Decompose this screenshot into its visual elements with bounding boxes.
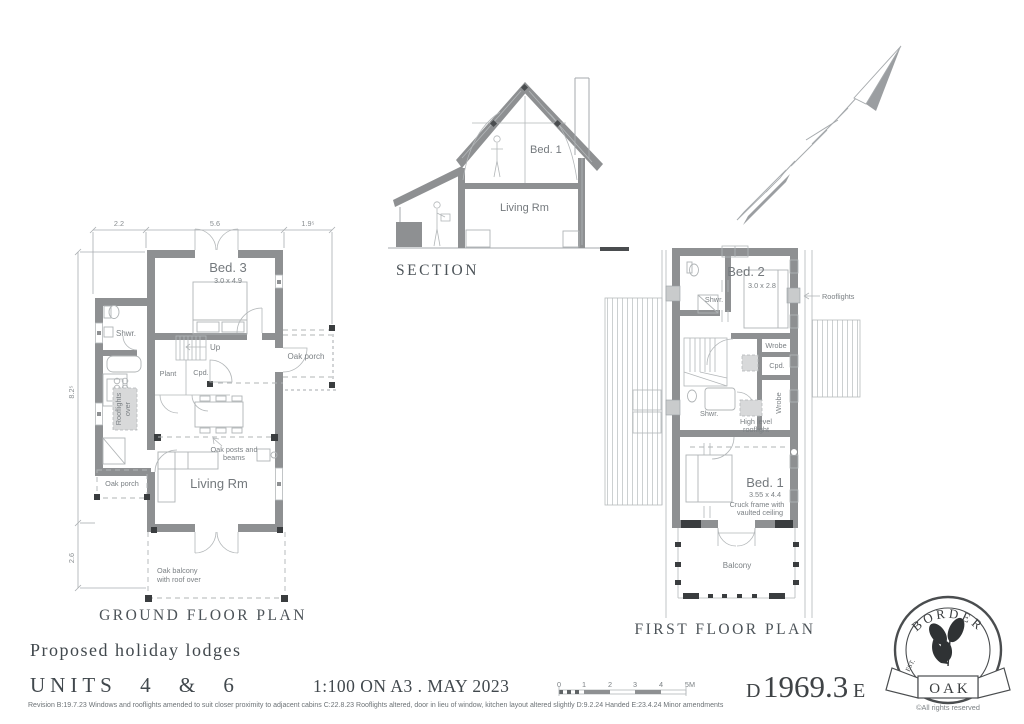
adjacent-wall-mark: [600, 247, 629, 251]
units-label: UNITS 4 & 6: [30, 673, 239, 697]
roof-plane-right: [812, 320, 860, 397]
label-oak-porch-right: Oak porch: [288, 352, 325, 361]
label-gf-balcony-1: Oak balcony: [157, 566, 198, 575]
label-bed2-size: 3.0 x 2.8: [748, 281, 776, 290]
label-oak-posts-2: beams: [223, 453, 245, 462]
scale-tick-2: 2: [608, 680, 612, 689]
label-wrobe-top: Wrobe: [765, 341, 786, 350]
label-cpd-first: Cpd.: [769, 361, 784, 370]
logo-rights-text: ©All rights reserved: [916, 703, 980, 712]
label-rooflights-over-2: over: [123, 401, 132, 416]
label-plant: Plant: [160, 369, 177, 378]
ground-floor-balcony: Oak balcony with roof over: [145, 532, 288, 602]
section-title: SECTION: [396, 262, 479, 279]
first-floor-balcony: Balcony: [675, 528, 799, 599]
drawing-number-suffix: E: [853, 680, 865, 702]
room-bed2: Bed. 2 3.0 x 2.8: [722, 264, 788, 328]
label-bed1-size: 3.55 x 4.4: [749, 490, 781, 499]
oak-porch-right: Oak porch: [283, 325, 336, 390]
scale-tick-4: 4: [659, 680, 663, 689]
section-label-living: Living Rm: [500, 202, 549, 214]
revision-notes: Revision B:19.7.23 Windows and rooflight…: [28, 702, 724, 709]
drawing-number-prefix: D: [746, 680, 760, 702]
label-high-level-2: rooflight: [743, 425, 769, 434]
room-living: Oak posts and beams Living Rm: [158, 396, 277, 502]
first-floor-title: FIRST FLOOR PLAN: [635, 621, 816, 638]
label-bed3: Bed. 3: [209, 260, 247, 275]
first-floor-stairs: [684, 338, 727, 386]
figure-upstairs: [491, 136, 503, 177]
label-rooflights-over-1: Rooflights: [114, 392, 123, 425]
title-block: Proposed holiday lodges UNITS 4 & 6 1:10…: [28, 640, 865, 709]
label-up: Up: [210, 343, 221, 352]
dim-top-2: 5.6: [210, 219, 220, 228]
scale-date-label: 1:100 ON A3 . MAY 2023: [313, 676, 509, 696]
label-oak-porch-left: Oak porch: [105, 479, 139, 488]
ground-floor-annex: Shwr. Rooflights over: [103, 306, 141, 465]
north-arrow-icon: [737, 46, 901, 225]
scale-tick-1: 1: [582, 680, 586, 689]
roof-plane-left: [605, 298, 662, 505]
dim-left-2: 2.6: [67, 553, 76, 563]
scale-bar: 0 1 2 3 4 5M: [557, 680, 695, 696]
ground-floor-stairs: Up Plant Cpd.: [155, 336, 283, 395]
ground-floor-plan: 2.2 5.6 1.9⁵ 8.2⁵ 2.6: [67, 219, 336, 624]
dim-left-1: 8.2⁵: [67, 385, 76, 398]
label-cruck-2: vaulted ceiling: [737, 508, 783, 517]
label-rooflights: Rooflights: [822, 292, 855, 301]
label-wrobe-side: Wrobe: [774, 392, 783, 413]
ground-floor-title: GROUND FLOOR PLAN: [99, 607, 307, 624]
label-bed3-size: 3.0 x 4.9: [214, 276, 242, 285]
scale-tick-0: 0: [557, 680, 561, 689]
label-balcony: Balcony: [723, 561, 751, 570]
dim-top-1: 2.2: [114, 219, 124, 228]
dim-top-3: 1.9⁵: [301, 219, 314, 228]
label-shwr-ground: Shwr.: [116, 329, 136, 338]
high-level-rooflight: High level rooflight: [740, 400, 772, 434]
label-gf-balcony-2: with roof over: [156, 575, 201, 584]
drawing-canvas: Bed. 1 Living Rm SECTION 2.2 5.6 1.9⁵: [0, 0, 1024, 724]
label-living-ground: Living Rm: [190, 476, 248, 491]
label-bed1-first: Bed. 1: [746, 475, 784, 490]
section-label-bed1: Bed. 1: [530, 144, 562, 156]
drawing-number: D 1969.3 E: [746, 669, 865, 704]
project-title: Proposed holiday lodges: [30, 640, 242, 660]
label-cpd-ground: Cpd.: [193, 368, 208, 377]
logo-oak-text: OAK: [929, 681, 971, 697]
label-shwr-top: Shwr.: [705, 295, 723, 304]
scale-unit: 5M: [685, 680, 695, 689]
dimension-lines-ground: 2.2 5.6 1.9⁵ 8.2⁵ 2.6: [67, 219, 335, 591]
label-shwr-mid: Shwr.: [700, 409, 718, 418]
drawing-sheet: Bed. 1 Living Rm SECTION 2.2 5.6 1.9⁵: [0, 0, 1024, 724]
scale-tick-3: 3: [633, 680, 637, 689]
border-oak-logo: BORDER EST. 1980 OAK ©All rights reserve…: [886, 597, 1010, 712]
drawing-number-main: 1969.3: [763, 669, 848, 704]
section-drawing: Bed. 1 Living Rm SECTION: [388, 78, 616, 279]
room-bed1: Bed. 1 3.55 x 4.4 Cruck frame with vault…: [686, 437, 786, 518]
label-bed2: Bed. 2: [727, 264, 765, 279]
first-floor-plan: Rooflights Bed. 2 3.0 x 2.8 Shwr. Wrobe …: [600, 246, 860, 638]
figure-downstairs: [434, 202, 450, 246]
